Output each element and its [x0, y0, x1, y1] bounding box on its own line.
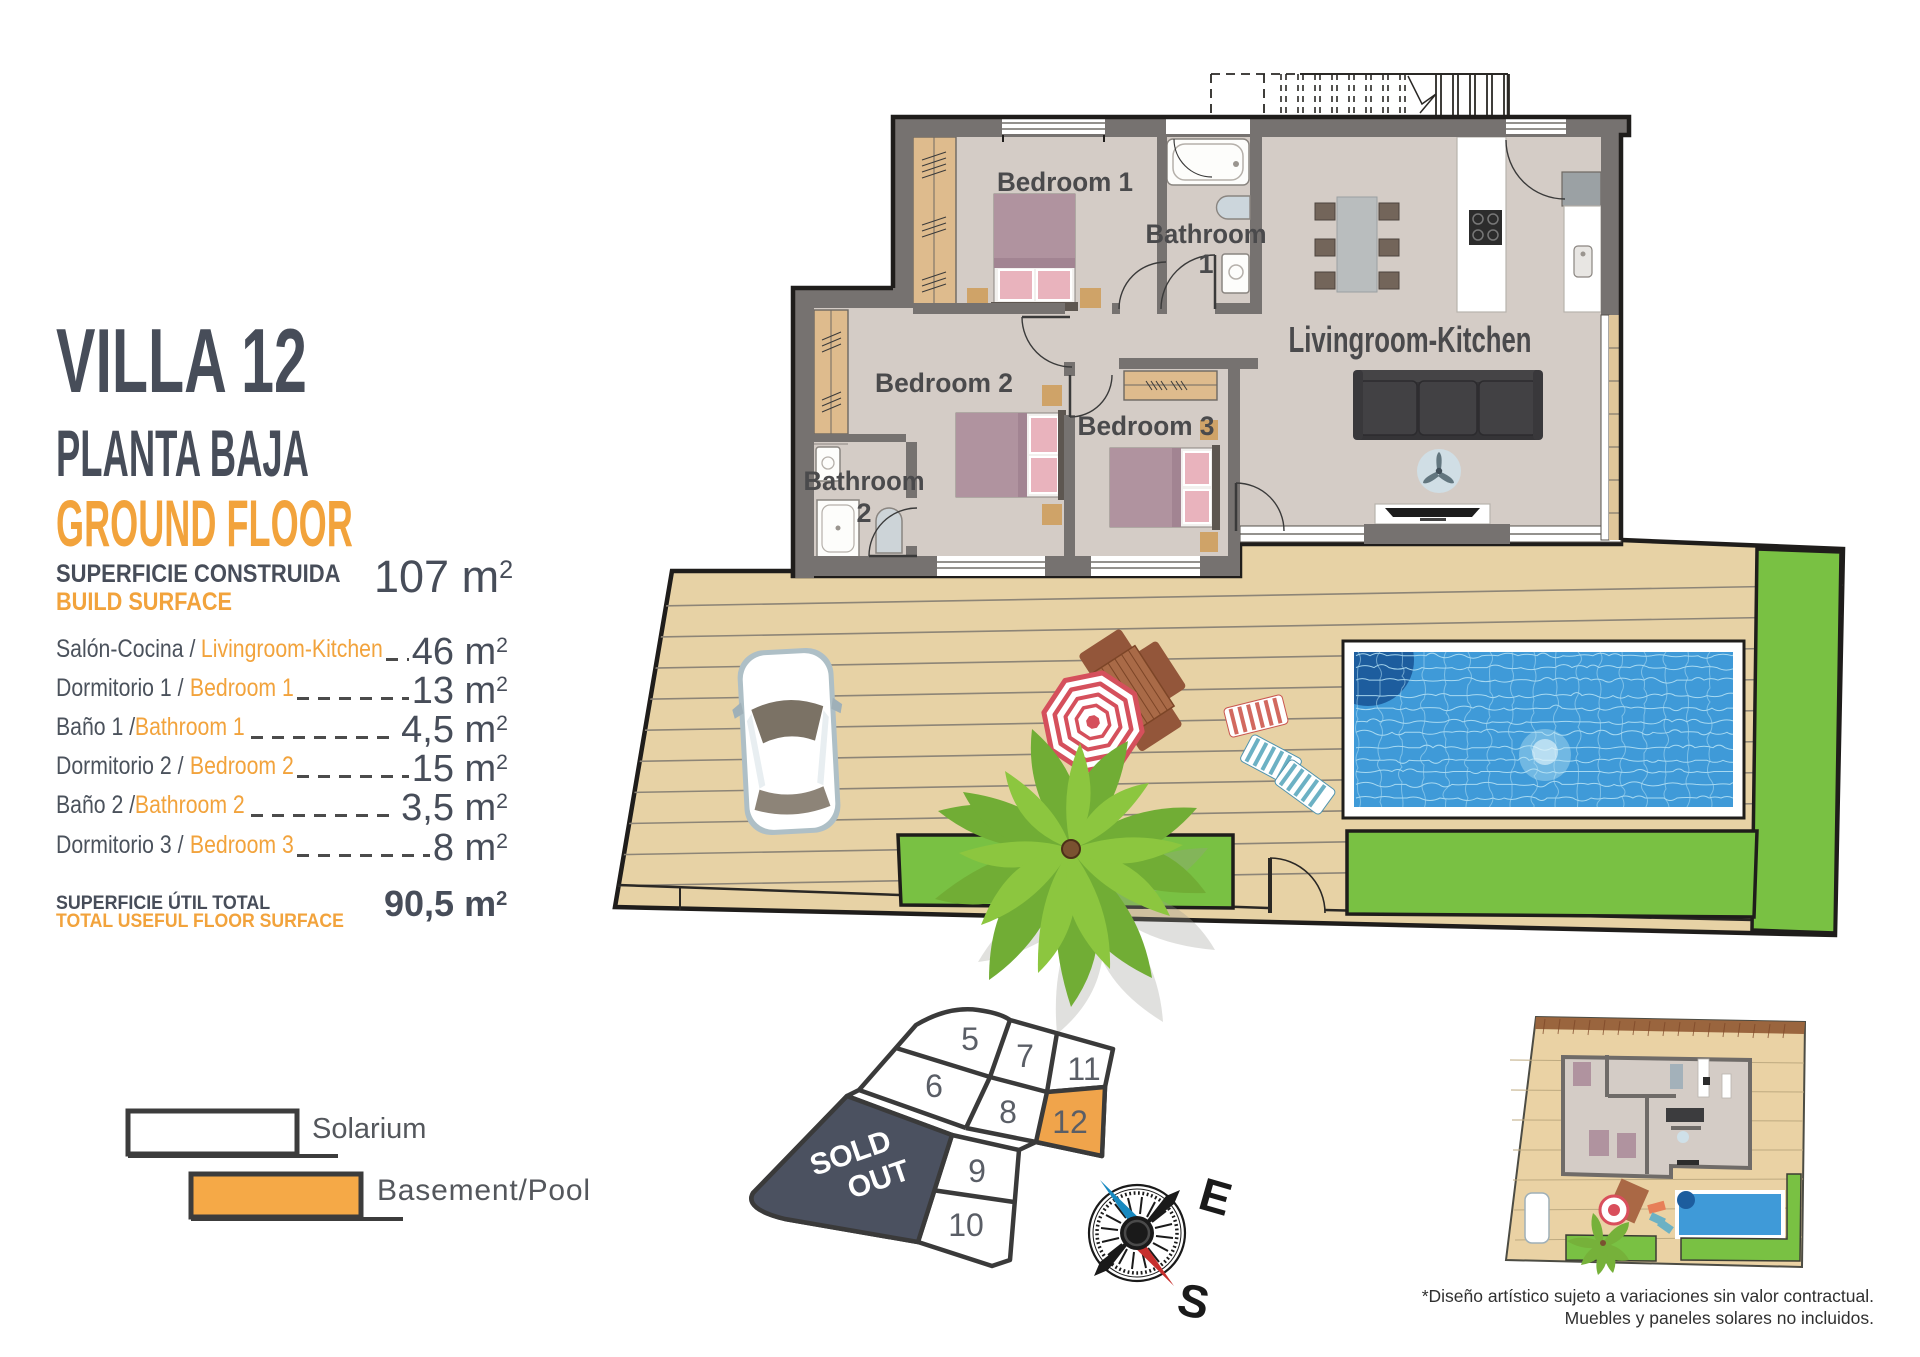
svg-text:Bedroom 1: Bedroom 1 [997, 167, 1133, 197]
svg-text:2: 2 [856, 498, 871, 528]
svg-text:10: 10 [948, 1207, 984, 1243]
svg-text:E: E [1194, 1167, 1238, 1225]
svg-text:12: 12 [1052, 1104, 1088, 1140]
svg-text:Bedroom 2: Bedroom 2 [875, 368, 1013, 398]
svg-text:6: 6 [925, 1068, 943, 1104]
svg-text:S: S [1173, 1273, 1214, 1330]
svg-text:9: 9 [968, 1153, 986, 1189]
svg-text:Bathroom: Bathroom [804, 466, 925, 496]
svg-text:5: 5 [961, 1021, 979, 1057]
svg-text:Bathroom: Bathroom [1146, 219, 1267, 249]
svg-text:Bedroom 3: Bedroom 3 [1078, 411, 1215, 441]
svg-text:7: 7 [1016, 1038, 1034, 1074]
svg-text:Livingroom-Kitchen: Livingroom-Kitchen [1289, 319, 1532, 360]
svg-text:11: 11 [1067, 1051, 1100, 1087]
svg-text:1: 1 [1198, 249, 1213, 279]
svg-text:8: 8 [999, 1094, 1017, 1130]
